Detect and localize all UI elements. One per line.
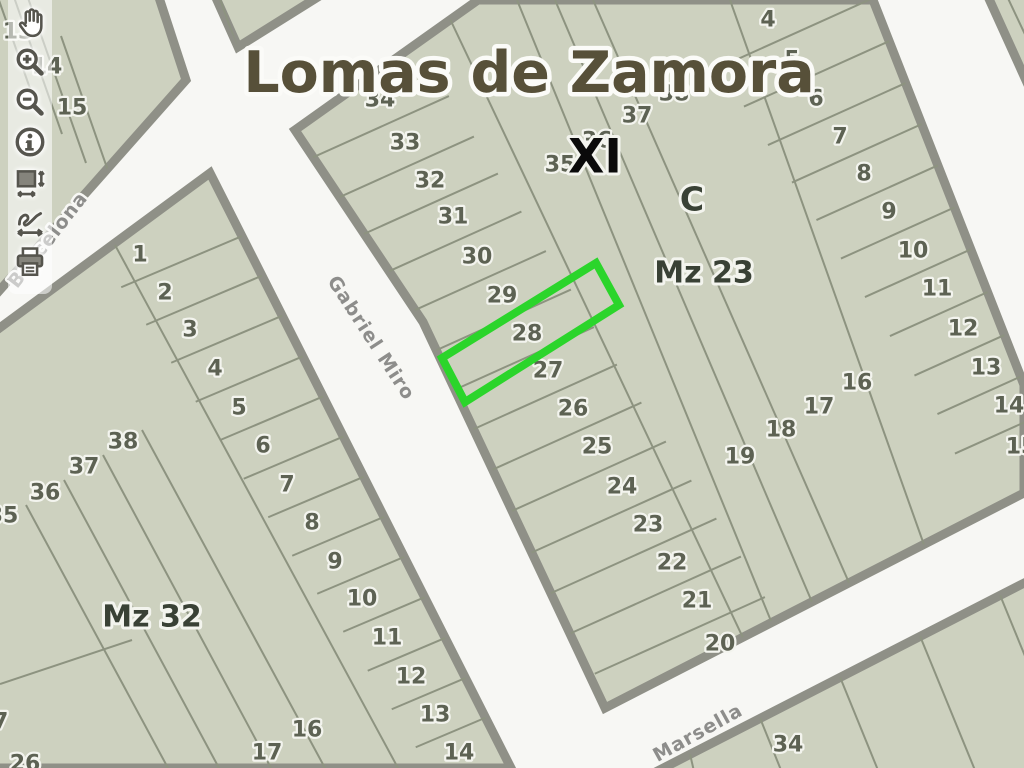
- lot-number: 15: [1006, 435, 1024, 460]
- lot-number: 7: [279, 473, 294, 498]
- lot-number: 38: [108, 430, 139, 455]
- lot-number: 16: [842, 371, 873, 396]
- lot-number: 14: [444, 741, 475, 766]
- map-title: Lomas de Zamora: [243, 40, 814, 106]
- lot-number: 30: [462, 245, 493, 270]
- lot-number: 10: [898, 239, 929, 264]
- lot-number: 11: [372, 626, 403, 651]
- lot-number: 8: [304, 511, 319, 536]
- lot-number: 17: [804, 395, 835, 420]
- pan-button[interactable]: [10, 2, 50, 42]
- identify-button[interactable]: [10, 122, 50, 162]
- lot-number: 2: [157, 281, 172, 306]
- lot-number: 3: [182, 318, 197, 343]
- lot-number: 28: [512, 322, 543, 347]
- lot-number: 25: [582, 435, 613, 460]
- lot-number: 26: [10, 752, 41, 768]
- print-icon: [13, 245, 47, 279]
- lot-number: 27: [533, 359, 564, 384]
- lot-number: 12: [948, 317, 979, 342]
- lot-number: 4: [760, 8, 775, 33]
- lot-number: 23: [633, 513, 664, 538]
- lot-number: 22: [657, 551, 688, 576]
- full-extent-icon: [13, 165, 47, 199]
- print-button[interactable]: [10, 242, 50, 282]
- lot-number: 9: [881, 200, 896, 225]
- lot-number: 16: [292, 718, 323, 743]
- lot-number: 4: [207, 357, 222, 382]
- zoom-in-icon: [13, 45, 47, 79]
- block-label: C: [680, 180, 704, 219]
- zoom-in-button[interactable]: [10, 42, 50, 82]
- map-toolbar: [8, 0, 52, 294]
- lot-number: 29: [487, 284, 518, 309]
- lot-number: 7: [832, 125, 847, 150]
- pan-hand-icon: [13, 5, 47, 39]
- lot-number: 26: [558, 397, 589, 422]
- lot-number: 34: [773, 733, 804, 758]
- block-label: Mz 32: [102, 600, 202, 635]
- map-canvas[interactable]: 1314151234567891011121314383736352726161…: [0, 0, 1024, 768]
- lot-number: 13: [971, 356, 1002, 381]
- lot-number: 27: [0, 710, 8, 735]
- lot-number: 37: [622, 104, 653, 129]
- lot-number: 5: [231, 396, 246, 421]
- lot-number: 17: [252, 741, 283, 766]
- block-label: Mz 23: [654, 256, 754, 291]
- lot-number: 8: [856, 162, 871, 187]
- lot-number: 14: [994, 394, 1024, 419]
- zoom-out-button[interactable]: [10, 82, 50, 122]
- previous-extent-icon: [13, 205, 47, 239]
- lot-number: 20: [705, 632, 736, 657]
- lot-number: 24: [607, 475, 638, 500]
- lot-number: 10: [347, 587, 378, 612]
- lot-number: 37: [69, 455, 100, 480]
- lot-number: 36: [30, 481, 61, 506]
- full-extent-button[interactable]: [10, 162, 50, 202]
- lot-number: 18: [766, 418, 797, 443]
- lot-number: 32: [415, 169, 446, 194]
- section-label: XI: [568, 130, 622, 185]
- lot-number: 33: [390, 131, 421, 156]
- previous-extent-button[interactable]: [10, 202, 50, 242]
- zoom-out-icon: [13, 85, 47, 119]
- lot-number: 6: [255, 434, 270, 459]
- map-viewer[interactable]: 1314151234567891011121314383736352726161…: [0, 0, 1024, 768]
- lot-number: 12: [396, 665, 427, 690]
- info-icon: [13, 125, 47, 159]
- lot-number: 13: [420, 703, 451, 728]
- lot-number: 31: [438, 205, 469, 230]
- lot-number: 35: [0, 504, 18, 529]
- lot-number: 1: [132, 243, 147, 268]
- lot-number: 9: [327, 550, 342, 575]
- lot-number: 11: [922, 277, 953, 302]
- lot-number: 15: [57, 96, 88, 121]
- lot-number: 19: [725, 445, 756, 470]
- lot-number: 21: [682, 589, 713, 614]
